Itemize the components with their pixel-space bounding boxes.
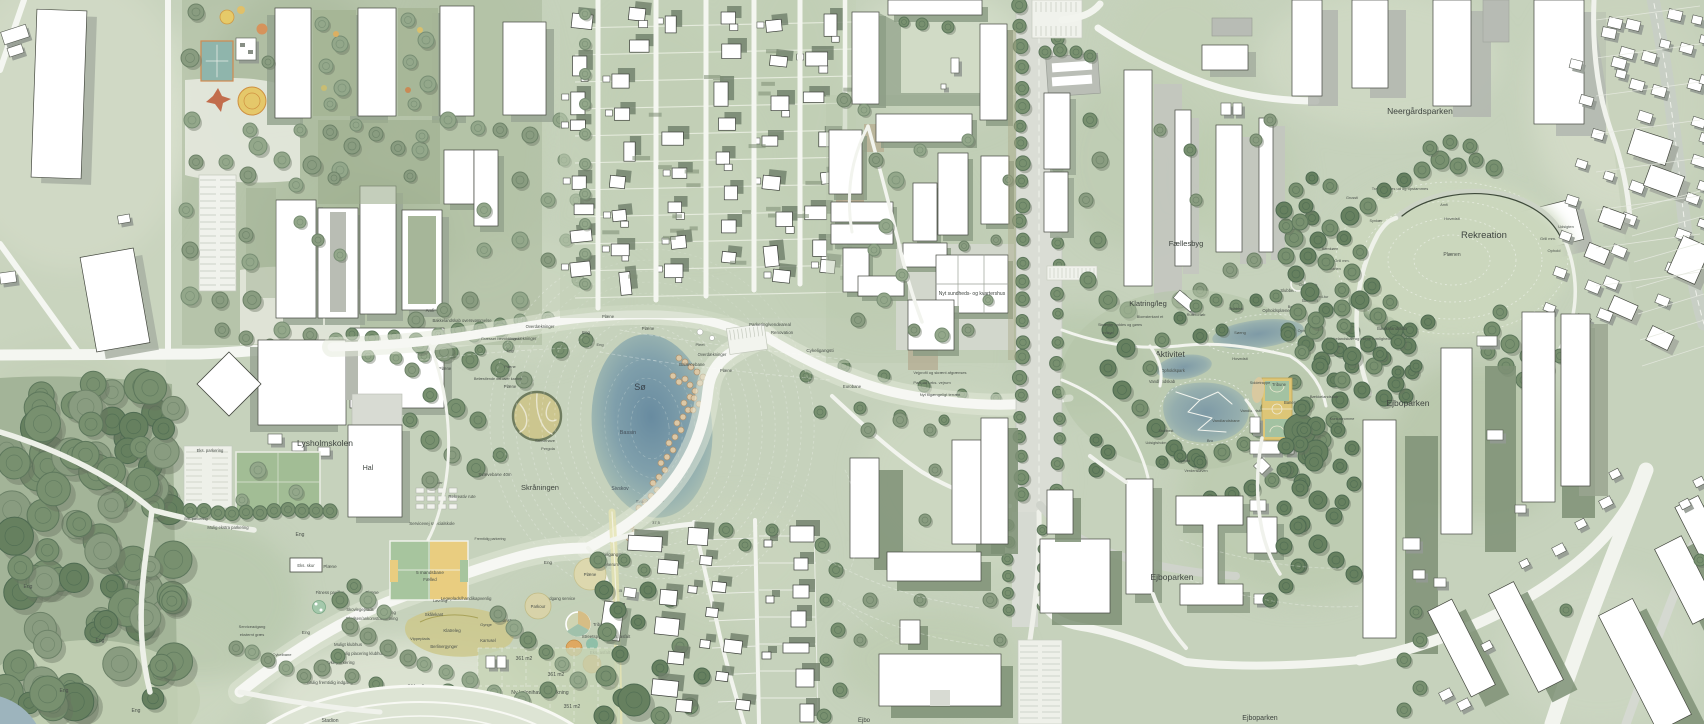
svg-text:Eng: Eng — [302, 630, 311, 635]
svg-text:Plæne: Plæne — [720, 368, 733, 373]
svg-text:Bassin: Bassin — [620, 430, 637, 436]
svg-text:Ejbo: Ejbo — [858, 718, 871, 724]
svg-text:Plæne: Plæne — [584, 572, 597, 577]
svg-text:Muligt klubhus: Muligt klubhus — [334, 642, 363, 647]
svg-text:Ophold: Ophold — [1178, 459, 1190, 463]
svg-text:Servicevej specialskole: Servicevej specialskole — [409, 521, 455, 526]
svg-text:Amfi: Amfi — [426, 308, 435, 313]
svg-text:Bakkelandskab oversvømmelse: Bakkelandskab oversvømmelse — [432, 318, 492, 323]
svg-text:Søeng: Søeng — [1234, 330, 1246, 335]
svg-text:Eks. parkering: Eks. parkering — [197, 448, 224, 453]
svg-text:Karrusel: Karrusel — [480, 638, 496, 643]
svg-text:Plæne: Plæne — [323, 564, 337, 569]
svg-text:Cykelbane: Cykelbane — [273, 652, 293, 657]
svg-text:Sivskov: Sivskov — [611, 486, 629, 492]
svg-text:Opholdspark: Opholdspark — [1161, 368, 1186, 373]
svg-text:Hal: Hal — [363, 465, 374, 472]
svg-text:Løvning: Løvning — [433, 598, 447, 603]
svg-text:Lysholmskolen: Lysholmskolen — [297, 438, 353, 448]
svg-text:Blomsterkant et: Blomsterkant et — [1137, 315, 1164, 319]
svg-text:Eng: Eng — [132, 708, 141, 714]
svg-text:Opholdsplæne: Opholdsplæne — [1262, 308, 1290, 313]
svg-text:Hovedsti: Hovedsti — [1444, 216, 1460, 221]
svg-text:37,5: 37,5 — [652, 520, 661, 525]
svg-text:Stubbest: Stubbest — [1229, 307, 1245, 311]
svg-text:Bro: Bro — [1207, 438, 1214, 443]
svg-text:Ejboparken: Ejboparken — [1386, 398, 1429, 408]
svg-text:Grussti: Grussti — [1346, 196, 1358, 200]
svg-text:Aktivitet: Aktivitet — [1155, 349, 1185, 359]
svg-text:Grill mm.: Grill mm. — [1334, 259, 1349, 263]
svg-text:Skålekant: Skålekant — [425, 612, 444, 617]
svg-text:Udsigten: Udsigten — [1558, 224, 1574, 229]
svg-text:Svævebane 40m: Svævebane 40m — [478, 472, 512, 477]
svg-text:Plæne: Plæne — [602, 314, 615, 319]
svg-text:indsyn: indsyn — [1103, 331, 1114, 335]
svg-text:Eng: Eng — [596, 342, 603, 347]
svg-text:Plæne: Plæne — [439, 366, 452, 371]
svg-text:Legeplads/handikapvenlig: Legeplads/handikapvenlig — [441, 596, 492, 601]
svg-text:Ejboparken: Ejboparken — [1242, 715, 1278, 722]
svg-text:Eks. skur: Eks. skur — [297, 563, 315, 568]
svg-text:Græsset bevokninger: Græsset bevokninger — [481, 336, 520, 341]
svg-text:Siddetrappe: Siddetrappe — [1250, 381, 1270, 385]
svg-text:Blir. parkering: Blir. parkering — [184, 517, 207, 521]
svg-text:Synkær: Synkær — [1369, 219, 1383, 223]
svg-text:Mulig placering klubhus: Mulig placering klubhus — [340, 651, 384, 656]
svg-text:Vandlandsbane: Vandlandsbane — [1212, 418, 1240, 423]
svg-text:eksternt græs: eksternt græs — [240, 632, 264, 637]
svg-text:Grill mm.: Grill mm. — [1540, 236, 1556, 241]
svg-text:Bækkelandskab: Bækkelandskab — [1377, 326, 1407, 331]
svg-text:Skråningen: Skråningen — [521, 483, 559, 492]
svg-text:Eng: Eng — [582, 330, 590, 335]
svg-text:Pleet: Pleet — [695, 342, 705, 347]
svg-text:Gynge: Gynge — [480, 622, 493, 627]
svg-text:Eng: Eng — [60, 688, 69, 694]
svg-text:Renovation: Renovation — [771, 330, 794, 335]
svg-text:5 mandsbane: 5 mandsbane — [416, 570, 444, 575]
svg-text:Plæne: Plæne — [642, 326, 655, 331]
svg-text:Overdækninger: Overdækninger — [526, 324, 555, 329]
svg-text:Eng: Eng — [544, 560, 553, 565]
svg-text:Rekreation: Rekreation — [1461, 230, 1507, 241]
svg-text:Eng: Eng — [296, 532, 305, 538]
svg-text:Cykeligangsti: Cykeligangsti — [806, 348, 833, 353]
svg-text:Sø: Sø — [634, 382, 646, 392]
svg-text:Serviceadgang: Serviceadgang — [239, 624, 266, 629]
svg-text:Verdensløven: Verdensløven — [1184, 469, 1207, 473]
svg-text:Skrænter ryddes og gøres: Skrænter ryddes og gøres — [1098, 323, 1142, 327]
svg-text:Stubbest: Stubbest — [1159, 429, 1175, 433]
svg-text:Bakkelandskab og intime rumlig: Bakkelandskab og intime rumligheder — [1327, 336, 1394, 341]
svg-text:Mulig ekstra parkering: Mulig ekstra parkering — [207, 525, 249, 530]
svg-text:Plæne: Plæne — [504, 364, 516, 369]
svg-text:Overdækninger: Overdækninger — [698, 352, 727, 357]
svg-text:Ophold: Ophold — [1548, 248, 1561, 253]
svg-text:Plænen: Plænen — [1443, 252, 1460, 258]
svg-text:Klatreleg: Klatreleg — [443, 628, 461, 633]
svg-text:Klatring/leg: Klatring/leg — [1129, 299, 1167, 308]
svg-text:Eurobane: Eurobane — [843, 384, 862, 389]
svg-text:Fællesbyg: Fællesbyg — [1169, 239, 1204, 248]
svg-text:351 m2: 351 m2 — [564, 704, 581, 710]
svg-text:Berlinergynger: Berlinergynger — [430, 644, 458, 649]
svg-text:Vippeplads: Vippeplads — [410, 636, 430, 641]
svg-text:Parkour: Parkour — [531, 604, 546, 609]
svg-text:Hovedsti: Hovedsti — [1232, 356, 1248, 361]
svg-text:Bækkelandskab: Bækkelandskab — [1310, 394, 1339, 399]
svg-text:Neergårdsparken: Neergårdsparken — [1387, 106, 1453, 116]
svg-text:Ruteforløb: Ruteforløb — [1187, 312, 1206, 317]
svg-text:Parkering/vendeareal: Parkering/vendeareal — [749, 322, 791, 327]
svg-text:Kursustromme: Kursustromme — [1330, 417, 1355, 421]
svg-text:361 m2: 361 m2 — [548, 672, 565, 678]
svg-text:Nyt tilgængeligt terræn: Nyt tilgængeligt terræn — [920, 392, 960, 397]
svg-text:Tribune: Tribune — [1272, 382, 1287, 387]
svg-text:Befæstlende del over kanten: Befæstlende del over kanten — [474, 377, 522, 381]
svg-text:Vejprofil og skrænt afgrænses: Vejprofil og skrænt afgrænses — [913, 370, 966, 375]
svg-text:Ejboparken: Ejboparken — [1150, 572, 1193, 582]
svg-text:Rekreativ rute: Rekreativ rute — [448, 494, 476, 499]
svg-text:Nyt sundheds- og kvartershus: Nyt sundheds- og kvartershus — [939, 291, 1006, 297]
svg-text:Stadion: Stadion — [322, 718, 339, 724]
svg-text:Park ud i eks. vejrum: Park ud i eks. vejrum — [913, 380, 951, 385]
svg-text:Sansehave: Sansehave — [535, 438, 556, 443]
svg-text:Eng: Eng — [506, 348, 513, 353]
svg-text:Amfi: Amfi — [1440, 203, 1448, 207]
svg-text:Fælled: Fælled — [423, 577, 437, 582]
svg-text:Eng: Eng — [96, 638, 105, 644]
svg-text:Udsigtsholm: Udsigtsholm — [1146, 441, 1167, 445]
svg-text:Pergola: Pergola — [541, 446, 556, 451]
svg-text:Fremtidig parkering: Fremtidig parkering — [475, 537, 506, 541]
svg-text:Eng: Eng — [24, 584, 33, 590]
svg-text:361 m2: 361 m2 — [516, 656, 533, 662]
svg-text:Balancebane: Balancebane — [679, 362, 705, 367]
